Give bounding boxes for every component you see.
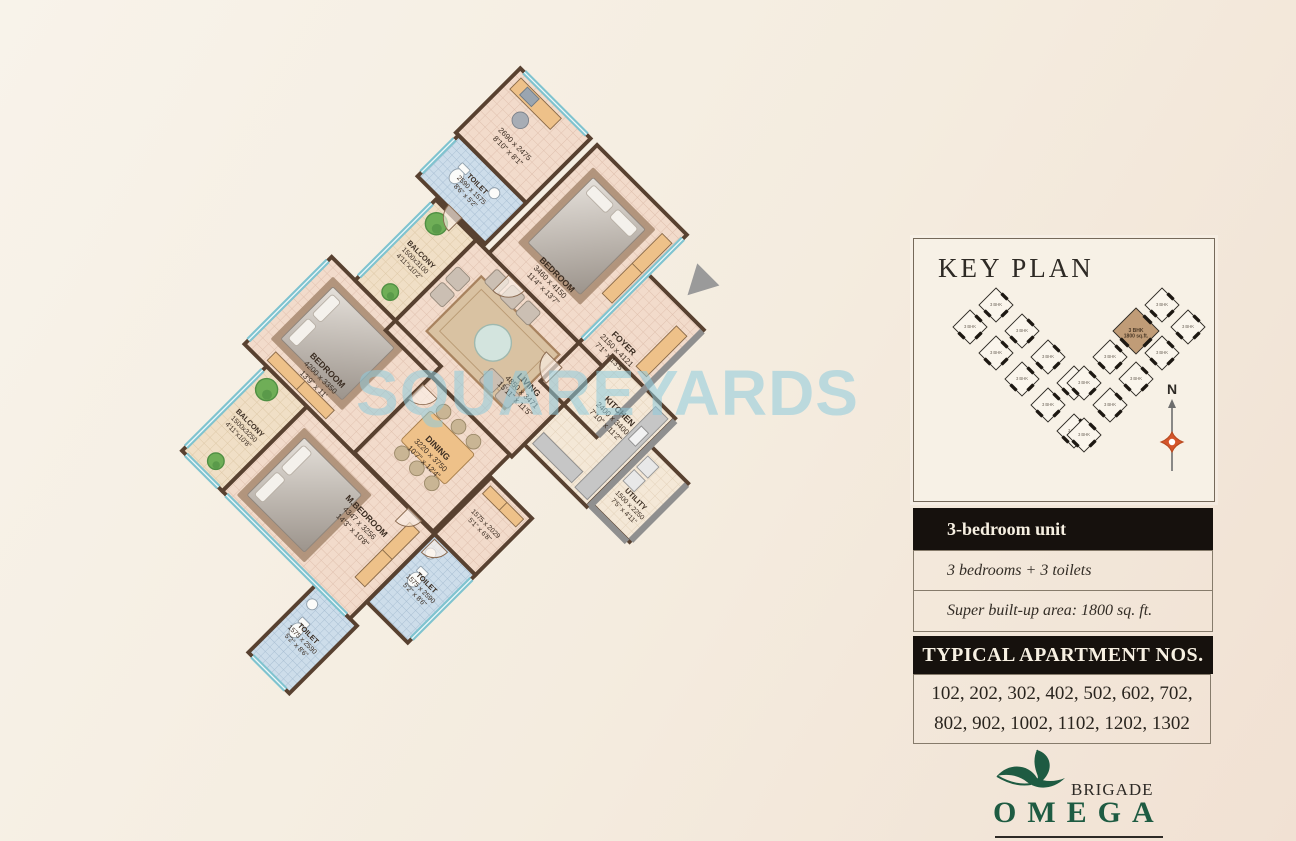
north-arrow: N: [1161, 381, 1183, 471]
watermark: SQUAREYARDS: [356, 356, 859, 430]
apartment-numbers: 102, 202, 302, 402, 502, 602, 702, 802, …: [913, 674, 1211, 744]
svg-text:3 BHK: 3 BHK: [964, 324, 976, 329]
svg-text:3 BHK: 3 BHK: [1104, 402, 1116, 407]
logo-divider: [995, 836, 1163, 838]
unit-config-row: 3 bedrooms + 3 toilets: [914, 551, 1212, 590]
svg-text:3 BHK: 3 BHK: [1016, 376, 1028, 381]
svg-text:3 BHK: 3 BHK: [1130, 376, 1142, 381]
brigade-omega-logo: BRIGADE OMEGA OFF KANAKAPURA ROAD: [985, 748, 1195, 838]
apartment-nos-title: TYPICAL APARTMENT NOS.: [922, 644, 1203, 667]
svg-text:3 BHK: 3 BHK: [990, 302, 1002, 307]
svg-text:3 BHK: 3 BHK: [1156, 350, 1168, 355]
svg-text:3 BHK: 3 BHK: [990, 350, 1002, 355]
svg-text:3 BHK: 3 BHK: [1078, 432, 1090, 437]
svg-text:3 BHK: 3 BHK: [1156, 302, 1168, 307]
svg-text:3 BHK: 3 BHK: [1182, 324, 1194, 329]
key-plan-panel: 3 BHK3 BHK3 BHK3 BHK3 BHK3 BHK3 BHK3 BHK…: [913, 238, 1215, 502]
unit-type-label: 3-bedroom unit: [947, 519, 1066, 540]
svg-text:3 BHK: 3 BHK: [1016, 328, 1028, 333]
unit-config-label: 3 bedrooms + 3 toilets: [947, 562, 1091, 580]
apartment-nos-bar: TYPICAL APARTMENT NOS.: [913, 636, 1213, 674]
unit-area-row: Super built-up area: 1800 sq. ft.: [914, 590, 1212, 630]
svg-text:3 BHK: 3 BHK: [1078, 380, 1090, 385]
svg-text:3 BHK: 3 BHK: [1104, 354, 1116, 359]
svg-text:3 BHK: 3 BHK: [1042, 354, 1054, 359]
north-label: N: [1167, 381, 1177, 397]
page: 2690 x 24758'10" x 8'1"TOILET2590 x 1575…: [0, 0, 1296, 841]
apartment-numbers-text: 102, 202, 302, 402, 502, 602, 702, 802, …: [920, 679, 1204, 739]
svg-text:3 BHK: 3 BHK: [1042, 402, 1054, 407]
logo-name: OMEGA: [993, 796, 1165, 830]
entrance-arrow: [676, 263, 719, 306]
unit-detail-box: 3 bedrooms + 3 toilets Super built-up ar…: [913, 550, 1213, 632]
key-plan-title: KEY PLAN: [938, 253, 1094, 284]
unit-type-bar: 3-bedroom unit: [913, 508, 1213, 550]
unit-area-label: Super built-up area: 1800 sq. ft.: [947, 602, 1152, 620]
